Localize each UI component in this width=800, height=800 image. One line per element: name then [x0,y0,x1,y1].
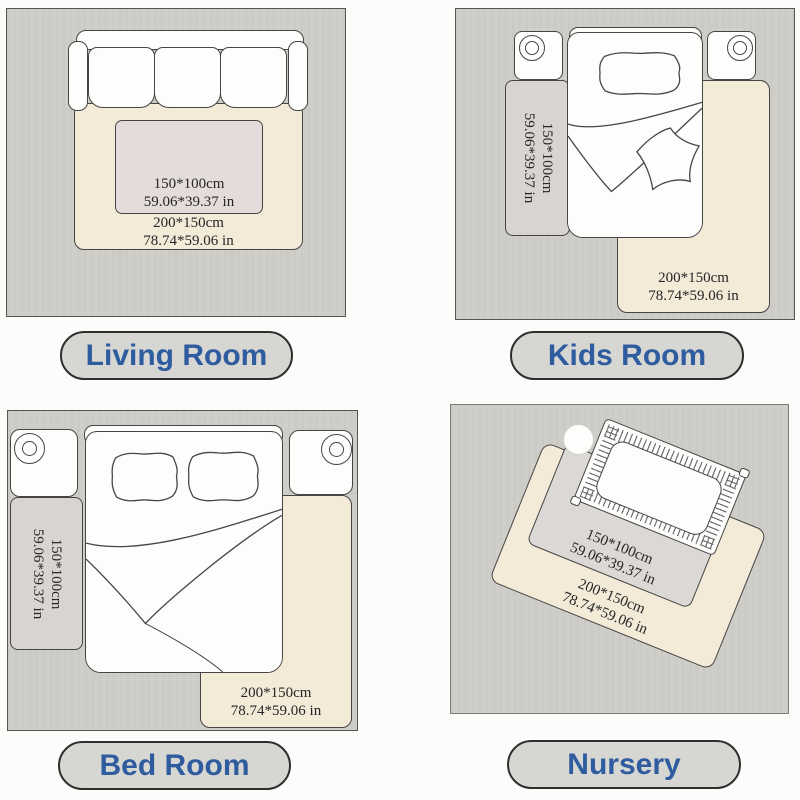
rug-small: 150*100cm 59.06*39.37 in [115,120,263,214]
sofa-cushion [220,47,287,108]
rug-small: 150*100cm 59.06*39.37 in [505,80,570,236]
rug-large-size-label: 200*150cm 78.74*59.06 in [74,214,303,250]
bed [85,431,283,673]
sofa-armrest-left [68,41,88,111]
size-text-cm: 150*100cm [538,83,556,233]
rug-small: 150*100cm 59.06*39.37 in [10,497,83,650]
room-label-pill: Kids Room [510,331,744,380]
room-label-pill: Bed Room [58,741,291,790]
room-label-text: Kids Room [548,339,706,373]
nightstand-left [10,429,78,497]
size-text-cm: 150*100cm [47,500,65,648]
rug-small-size-label: 150*100cm 59.06*39.37 in [520,83,556,233]
rug-small-size-label: 150*100cm 59.06*39.37 in [29,500,65,648]
size-text-in: 59.06*39.37 in [29,500,47,648]
pillow [600,53,680,95]
nightstand-right [289,430,353,495]
room-label-text: Nursery [567,748,680,782]
size-text-cm: 200*150cm [241,684,312,702]
size-text-in: 59.06*39.37 in [520,83,538,233]
nightstand-lamp-inner [329,442,344,457]
bedding-drawing [568,33,702,237]
ball [563,424,594,455]
room-label-text: Bed Room [100,749,250,783]
nightstand-lamp-inner [733,41,747,55]
blanket [86,515,282,672]
sofa-armrest-right [288,41,308,111]
room-label-text: Living Room [86,339,268,373]
size-text-cm: 200*150cm [74,214,303,232]
pillow [112,453,177,501]
size-text-in: 78.74*59.06 in [74,232,303,250]
nightstand-lamp-inner [22,441,37,456]
pillow [189,452,259,500]
size-text-cm: 150*100cm [154,175,225,193]
size-text-in: 59.06*39.37 in [144,193,234,211]
size-guide-infographic: 150*100cm 59.06*39.37 in 200*150cm 78.74… [0,0,800,800]
bed [567,32,703,238]
nightstand-lamp-inner [525,41,539,55]
size-text-in: 78.74*59.06 in [648,287,738,305]
sheet-fold-line [568,102,702,126]
size-text-in: 78.74*59.06 in [231,702,321,720]
room-label-pill: Living Room [60,331,293,380]
room-label-pill: Nursery [507,740,741,789]
sofa-cushion [88,47,155,108]
sofa-cushion [154,47,221,108]
nightstand-left [514,31,563,80]
size-text-cm: 200*150cm [658,269,729,287]
nightstand-right [707,31,756,80]
bedding-drawing [86,432,282,672]
